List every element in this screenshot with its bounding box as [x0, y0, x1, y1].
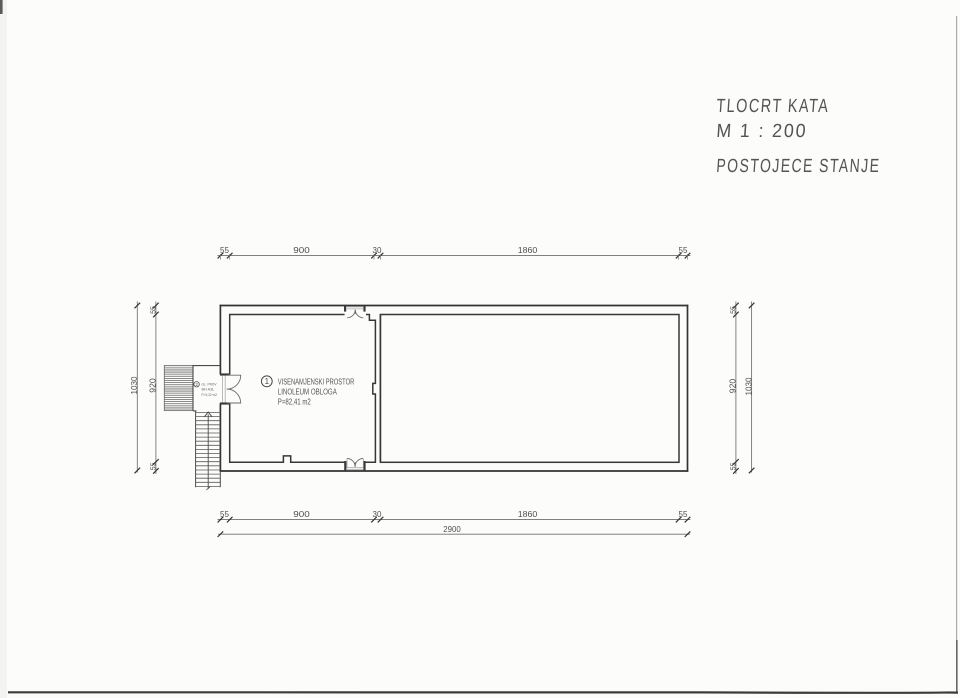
svg-text:30: 30 [373, 510, 382, 519]
svg-text:920: 920 [149, 378, 158, 393]
svg-text:1860: 1860 [518, 246, 538, 255]
svg-text:55: 55 [679, 510, 688, 519]
svg-text:55: 55 [730, 463, 737, 471]
svg-text:2: 2 [195, 382, 198, 387]
svg-text:1030: 1030 [744, 377, 753, 396]
svg-text:TLOCRT KATA: TLOCRT KATA [716, 96, 830, 117]
svg-text:BH A3L: BH A3L [202, 386, 216, 391]
svg-text:1860: 1860 [518, 510, 538, 519]
svg-text:1030: 1030 [130, 376, 139, 395]
svg-text:1: 1 [265, 377, 270, 386]
svg-text:900: 900 [293, 246, 310, 255]
svg-text:M 1 : 200: M 1 : 200 [716, 121, 808, 142]
svg-text:55: 55 [220, 510, 229, 519]
svg-text:55: 55 [220, 246, 229, 255]
svg-text:920: 920 [729, 378, 738, 393]
svg-text:LINOLEUM OBLOGA: LINOLEUM OBLOGA [278, 387, 338, 396]
svg-text:55: 55 [150, 306, 157, 314]
svg-text:55: 55 [150, 463, 157, 471]
svg-text:2900: 2900 [443, 525, 461, 534]
svg-text:P=9,22 m2: P=9,22 m2 [202, 392, 218, 397]
svg-text:55: 55 [730, 306, 737, 314]
svg-text:55: 55 [679, 246, 688, 255]
svg-text:P=82,41 m2: P=82,41 m2 [278, 397, 311, 406]
svg-text:30: 30 [373, 246, 382, 255]
svg-text:VISENAMJENSKI PROSTOR: VISENAMJENSKI PROSTOR [278, 377, 355, 386]
svg-text:POSTOJECE STANJE: POSTOJECE STANJE [716, 156, 881, 177]
svg-text:900: 900 [293, 510, 310, 519]
